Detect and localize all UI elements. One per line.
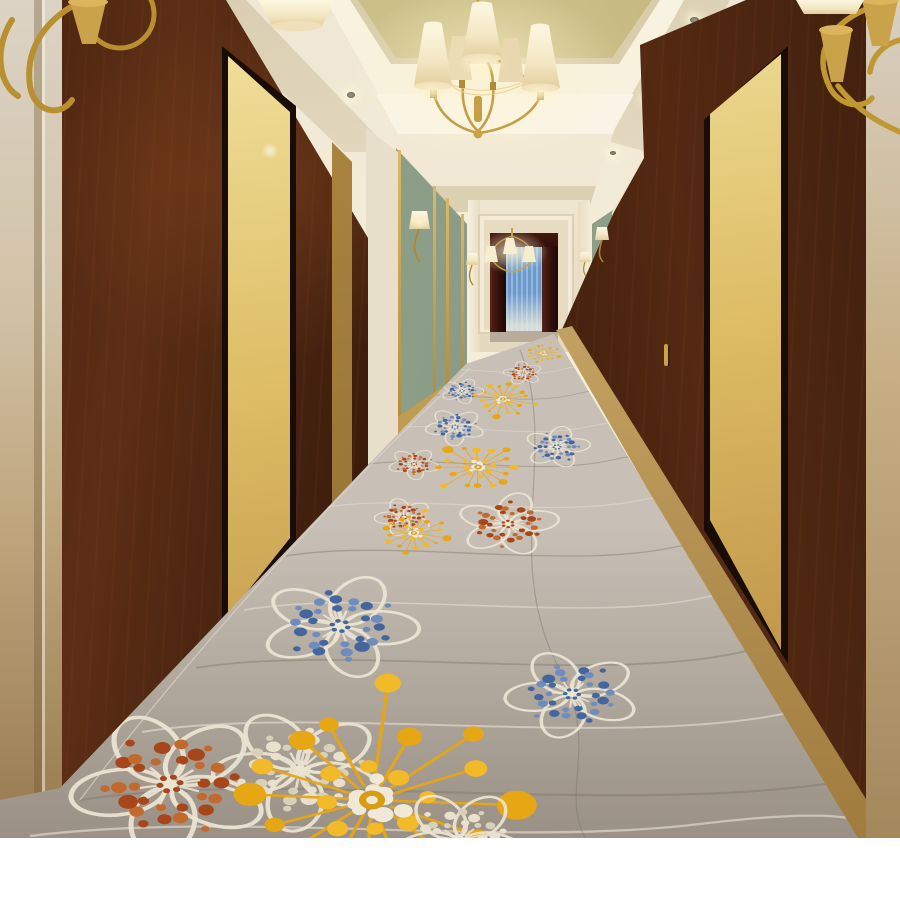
photo-vignette <box>0 0 900 838</box>
carpet-product-page: 08 编号:Y2465-D4 <box>0 0 900 900</box>
corridor-photo: 08 <box>0 0 900 838</box>
